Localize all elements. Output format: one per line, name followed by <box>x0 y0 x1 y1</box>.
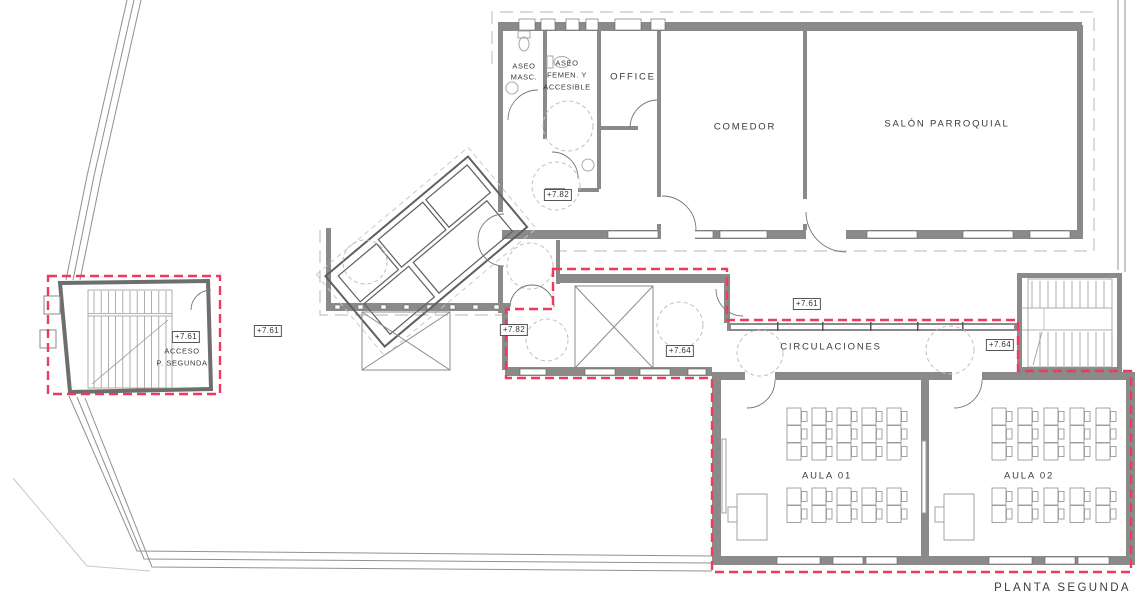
level-marker-vestibule: +7.82 <box>500 324 528 336</box>
room-label-aseo-masc-2: MASC. <box>511 73 538 82</box>
room-label-acceso-1: ACCESO <box>164 347 199 356</box>
drawing-title: PLANTA SEGUNDA <box>994 582 1131 594</box>
room-label-aseo-masc-1: ASEO <box>512 62 535 71</box>
level-marker-terrace: +7.61 <box>254 325 282 337</box>
sanitary-fixtures <box>506 31 594 171</box>
door-openings <box>661 230 1014 380</box>
room-label-aseo-femen-3: ACCESIBLE <box>543 83 591 92</box>
level-marker-hall: +7.82 <box>544 189 572 201</box>
room-label-aseo-femen-2: FEMEN. Y <box>547 71 587 80</box>
level-marker-corridor-west: +7.64 <box>666 345 694 357</box>
room-label-acceso-2: P. SEGUNDA <box>156 359 207 368</box>
room-label-aula02: AULA 02 <box>1004 471 1054 482</box>
right-stair-block <box>1022 279 1112 367</box>
room-label-circulaciones: CIRCULACIONES <box>780 342 882 353</box>
room-label-aseo-femen-1: ASEO <box>555 59 578 68</box>
room-label-salon: SALÓN PARROQUIAL <box>884 119 1009 130</box>
level-marker-stair-left: +7.61 <box>172 331 200 343</box>
floor-plan: ASEO MASC. ASEO FEMEN. Y ACCESIBLE OFFIC… <box>0 0 1144 606</box>
door-arcs <box>478 90 982 408</box>
level-marker-corridor-east: +7.64 <box>986 339 1014 351</box>
room-label-comedor: COMEDOR <box>714 122 776 133</box>
level-marker-patio: +7.61 <box>793 298 821 310</box>
room-label-aula01: AULA 01 <box>802 471 852 482</box>
room-label-office: OFFICE <box>610 72 656 83</box>
